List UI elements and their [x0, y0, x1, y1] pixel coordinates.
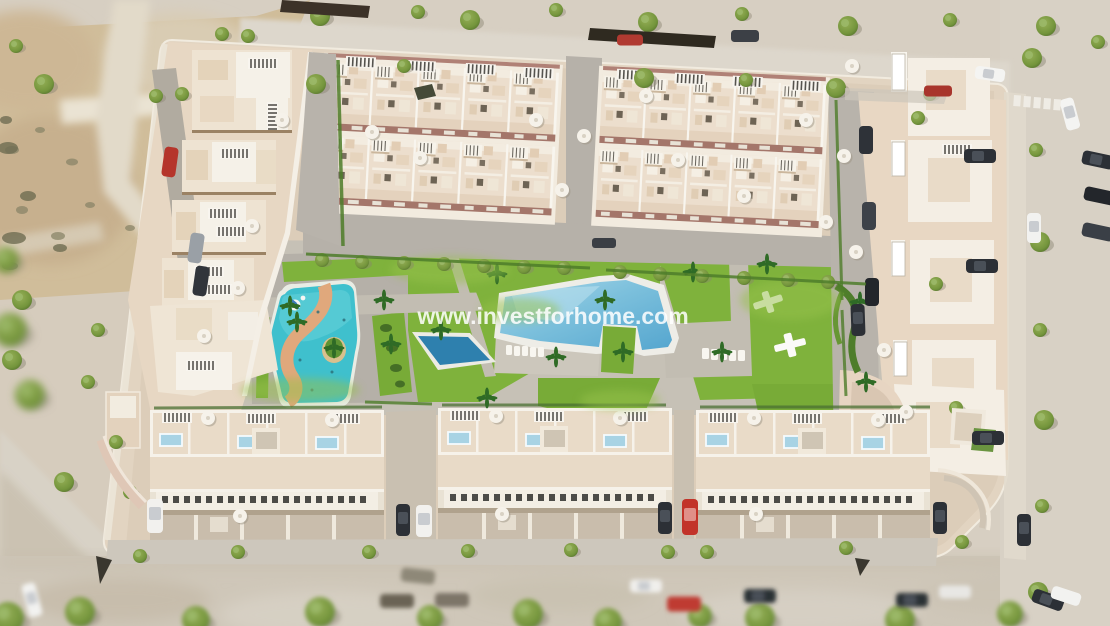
svg-text:www.investforhome.com: www.investforhome.com: [416, 303, 688, 329]
